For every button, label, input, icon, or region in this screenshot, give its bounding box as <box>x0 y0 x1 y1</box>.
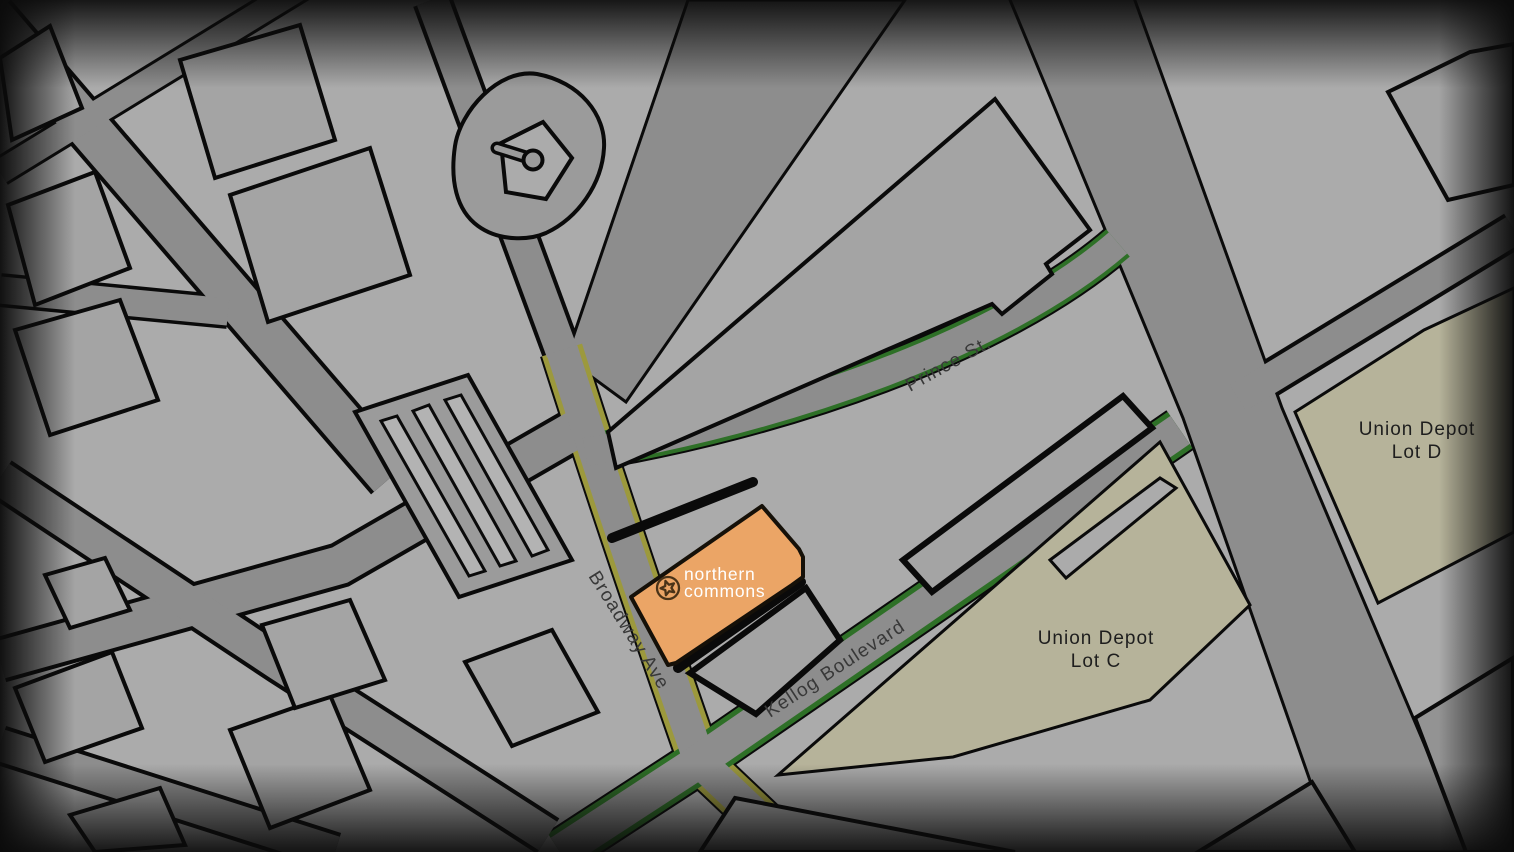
poi-label-line2: commons <box>684 581 765 601</box>
lot-d-label-line1: Union Depot <box>1359 419 1476 440</box>
lot-c-label-line2: Lot C <box>1071 651 1121 672</box>
lot-d-label-line2: Lot D <box>1392 442 1442 463</box>
building <box>465 630 598 746</box>
building <box>1388 44 1514 200</box>
building <box>700 798 1015 852</box>
baseball-mound <box>524 151 543 170</box>
building <box>262 600 385 708</box>
lot-c-label-line1: Union Depot <box>1038 628 1155 649</box>
map-canvas: Prince St. Broadway Ave Kellog Boulevard… <box>0 0 1514 852</box>
street-map: Prince St. Broadway Ave Kellog Boulevard… <box>0 0 1514 852</box>
